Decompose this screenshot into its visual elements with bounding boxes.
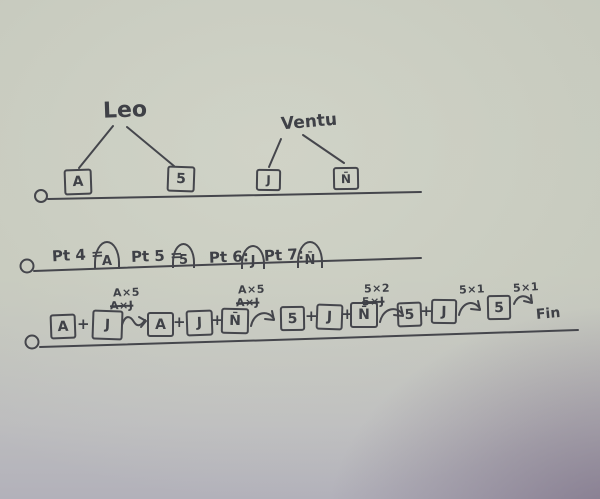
seq-card-A2: A — [147, 312, 174, 337]
plus-sign: + — [77, 317, 90, 332]
seq-card-N1: N̄ — [221, 308, 249, 334]
line3-ring-icon — [26, 336, 39, 349]
tree-card-J: J — [256, 169, 281, 191]
tree-leo-label: Leo — [103, 97, 148, 124]
curved-arrow-icon — [377, 302, 407, 332]
ventu-right-branch — [303, 135, 344, 163]
ventu-left-branch — [269, 139, 281, 167]
seq-card-53: 5 — [487, 295, 511, 320]
small-arrow-icon — [511, 292, 537, 316]
paper-photo: Leo Ventu A 5 J N̄ Pt 4 = A Pt 5 = 5 Pt … — [0, 0, 600, 499]
line2-ring-icon — [21, 260, 34, 273]
seq-card-A1: A — [50, 314, 77, 340]
tree-card-N: N̄ — [333, 167, 359, 190]
tree-card-5: 5 — [167, 166, 196, 193]
annotation-2: A×5 — [238, 284, 265, 296]
squiggle-arrow-icon — [120, 309, 150, 339]
leo-right-branch — [127, 127, 174, 166]
seq-card-J3: J — [316, 304, 344, 331]
line1-ring-icon — [35, 190, 47, 202]
baseline-1 — [48, 192, 421, 199]
plus-sign: + — [173, 315, 186, 330]
seq-card-51: 5 — [280, 306, 305, 331]
curved-arrow-icon — [248, 306, 278, 336]
fin-label: Fin — [535, 305, 561, 323]
leo-left-branch — [79, 126, 113, 168]
seq-card-J1: J — [91, 309, 123, 340]
tree-card-A: A — [64, 169, 93, 196]
seq-card-J2: J — [186, 310, 214, 337]
annotation-3: 5×2 — [364, 283, 390, 295]
annotation-4: 5×1 — [459, 283, 486, 295]
seq-card-J4: J — [431, 299, 457, 324]
annotation-1: A×5 — [113, 287, 140, 299]
curved-arrow-icon — [456, 297, 484, 325]
